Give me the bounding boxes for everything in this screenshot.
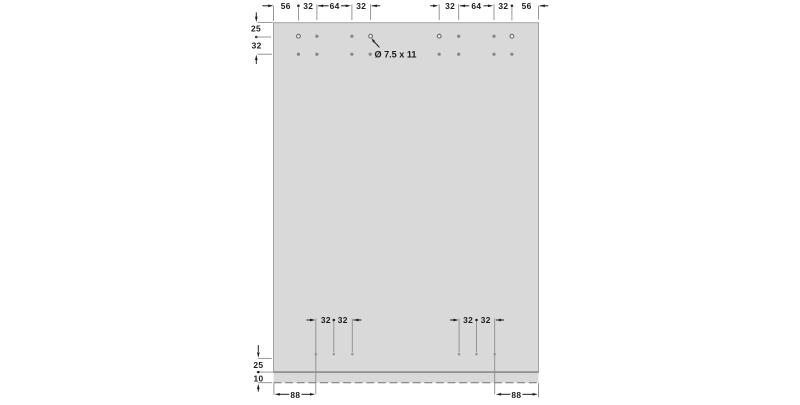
svg-text:32: 32 [356,1,366,11]
svg-text:32: 32 [481,315,491,325]
svg-text:64: 64 [330,1,340,11]
svg-text:88: 88 [511,390,521,400]
svg-text:32: 32 [252,41,262,51]
svg-text:32: 32 [338,315,348,325]
svg-text:Ø 7.5 x 11: Ø 7.5 x 11 [375,49,417,59]
svg-text:10: 10 [253,373,263,383]
svg-text:25: 25 [253,360,263,370]
svg-text:32: 32 [303,1,313,11]
svg-text:56: 56 [281,1,291,11]
svg-text:64: 64 [471,1,481,11]
svg-text:32: 32 [498,1,508,11]
svg-text:32: 32 [321,315,331,325]
svg-text:25: 25 [251,23,261,33]
svg-text:56: 56 [522,1,532,11]
svg-text:32: 32 [445,1,455,11]
svg-text:32: 32 [463,315,473,325]
svg-text:88: 88 [290,390,300,400]
